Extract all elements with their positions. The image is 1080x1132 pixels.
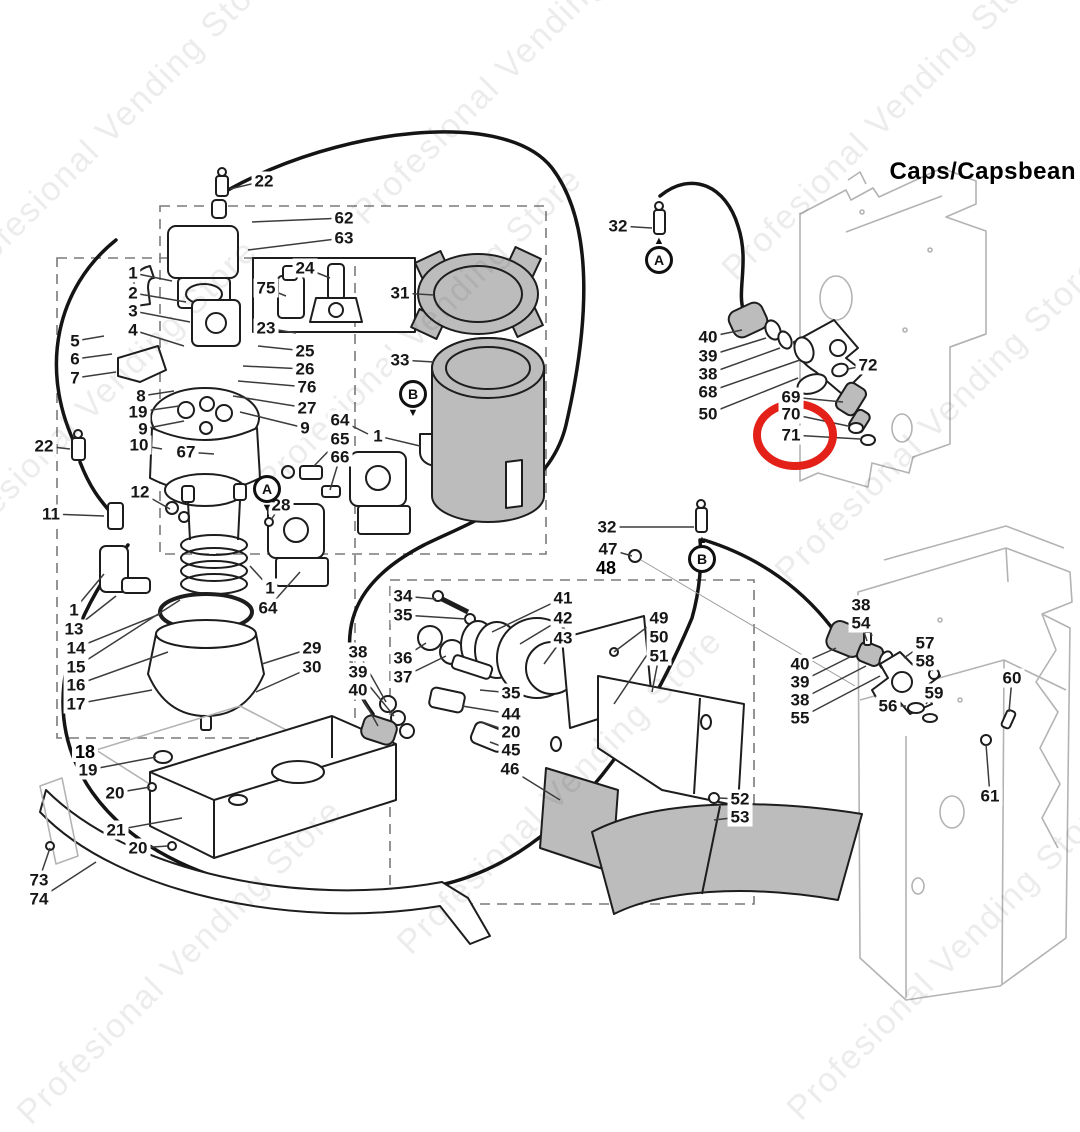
part-label-1: 1: [66, 601, 81, 620]
part-label-40: 40: [346, 681, 371, 700]
part-label-13: 13: [62, 620, 87, 639]
part-label-64: 64: [256, 599, 281, 618]
part-label-60: 60: [1000, 669, 1025, 688]
part-label-2: 2: [125, 284, 140, 303]
part-label-52: 52: [728, 790, 753, 809]
parts-diagram: Profesional Vending StoreProfesional Ven…: [0, 0, 1080, 1080]
part-label-35: 35: [391, 606, 416, 625]
part-label-39: 39: [696, 347, 721, 366]
part-label-39: 39: [788, 673, 813, 692]
part-label-10: 10: [127, 436, 152, 455]
part-label-73: 73: [27, 871, 52, 890]
part-label-66: 66: [328, 448, 353, 467]
part-label-16: 16: [64, 676, 89, 695]
part-label-43: 43: [551, 629, 576, 648]
part-label-47: 47: [596, 540, 621, 559]
part-label-58: 58: [913, 652, 938, 671]
part-label-36: 36: [391, 649, 416, 668]
part-label-61: 61: [978, 787, 1003, 806]
part-label-20: 20: [126, 839, 151, 858]
part-label-11: 11: [39, 505, 63, 524]
part-label-1: 1: [125, 264, 140, 283]
part-label-46: 46: [498, 760, 523, 779]
part-label-29: 29: [300, 639, 325, 658]
part-label-50: 50: [696, 405, 721, 424]
part-label-7: 7: [67, 369, 82, 388]
part-label-41: 41: [551, 589, 576, 608]
connection-marker-B: B: [688, 545, 716, 573]
part-label-67: 67: [174, 443, 199, 462]
part-label-34: 34: [391, 587, 416, 606]
part-label-4: 4: [125, 321, 140, 340]
part-label-70: 70: [779, 405, 804, 424]
part-label-54: 54: [849, 614, 874, 633]
part-label-22: 22: [32, 437, 57, 456]
part-label-42: 42: [551, 609, 576, 628]
part-label-38: 38: [849, 596, 874, 615]
part-label-49: 49: [647, 609, 672, 628]
cabinet-bottom-right: [858, 526, 1072, 1000]
part-label-63: 63: [332, 229, 357, 248]
part-label-75: 75: [254, 279, 279, 298]
part-label-71: 71: [779, 426, 804, 445]
part-label-40: 40: [696, 328, 721, 347]
part-label-48: 48: [593, 558, 619, 578]
connection-marker-A: A: [253, 475, 281, 503]
part-label-9: 9: [297, 419, 312, 438]
part-label-76: 76: [295, 378, 320, 397]
part-label-38: 38: [346, 643, 371, 662]
part-label-19: 19: [76, 761, 101, 780]
part-label-31: 31: [388, 284, 413, 303]
part-label-74: 74: [27, 890, 52, 909]
connection-marker-A: A: [645, 246, 673, 274]
part-label-64: 64: [328, 411, 353, 430]
part-label-15: 15: [64, 658, 89, 677]
part-label-57: 57: [913, 634, 938, 653]
part-label-6: 6: [67, 350, 82, 369]
part-label-27: 27: [295, 399, 320, 418]
part-label-33: 33: [388, 351, 413, 370]
part-label-45: 45: [499, 741, 524, 760]
connection-marker-B: B: [399, 380, 427, 408]
part-label-22: 22: [252, 172, 277, 191]
part-label-12: 12: [128, 483, 153, 502]
part-label-62: 62: [332, 209, 357, 228]
part-label-32: 32: [595, 518, 620, 537]
part-label-30: 30: [300, 658, 325, 677]
part-label-56: 56: [876, 697, 901, 716]
part-label-72: 72: [856, 356, 881, 375]
part-label-50: 50: [647, 628, 672, 647]
diagram-title: Caps/Capsbean: [889, 158, 1076, 186]
heating-coil-group: [148, 484, 264, 730]
part-label-65: 65: [328, 430, 353, 449]
part-label-59: 59: [922, 684, 947, 703]
part-label-51: 51: [647, 647, 672, 666]
part-label-17: 17: [64, 695, 89, 714]
part-label-40: 40: [788, 655, 813, 674]
part-label-55: 55: [788, 709, 813, 728]
part-label-32: 32: [606, 217, 631, 236]
part-label-23: 23: [254, 319, 279, 338]
cap-injector-top-group: [654, 202, 875, 445]
part-label-25: 25: [293, 342, 318, 361]
part-label-38: 38: [696, 365, 721, 384]
part-label-53: 53: [728, 808, 753, 827]
part-label-1: 1: [370, 427, 385, 446]
part-label-37: 37: [391, 668, 416, 687]
part-label-21: 21: [104, 821, 129, 840]
part-label-44: 44: [499, 705, 524, 724]
part-label-20: 20: [103, 784, 128, 803]
part-label-14: 14: [64, 639, 89, 658]
part-label-38: 38: [788, 691, 813, 710]
part-label-68: 68: [696, 383, 721, 402]
part-label-18: 18: [72, 742, 98, 762]
lid-and-canister-group: [411, 247, 544, 522]
part-label-24: 24: [293, 259, 318, 278]
part-label-26: 26: [293, 360, 318, 379]
part-label-1: 1: [262, 579, 277, 598]
part-label-39: 39: [346, 663, 371, 682]
injector-box-group: [278, 264, 362, 322]
part-label-20: 20: [499, 723, 524, 742]
part-label-5: 5: [67, 332, 82, 351]
part-label-3: 3: [125, 302, 140, 321]
part-label-35: 35: [499, 684, 524, 703]
